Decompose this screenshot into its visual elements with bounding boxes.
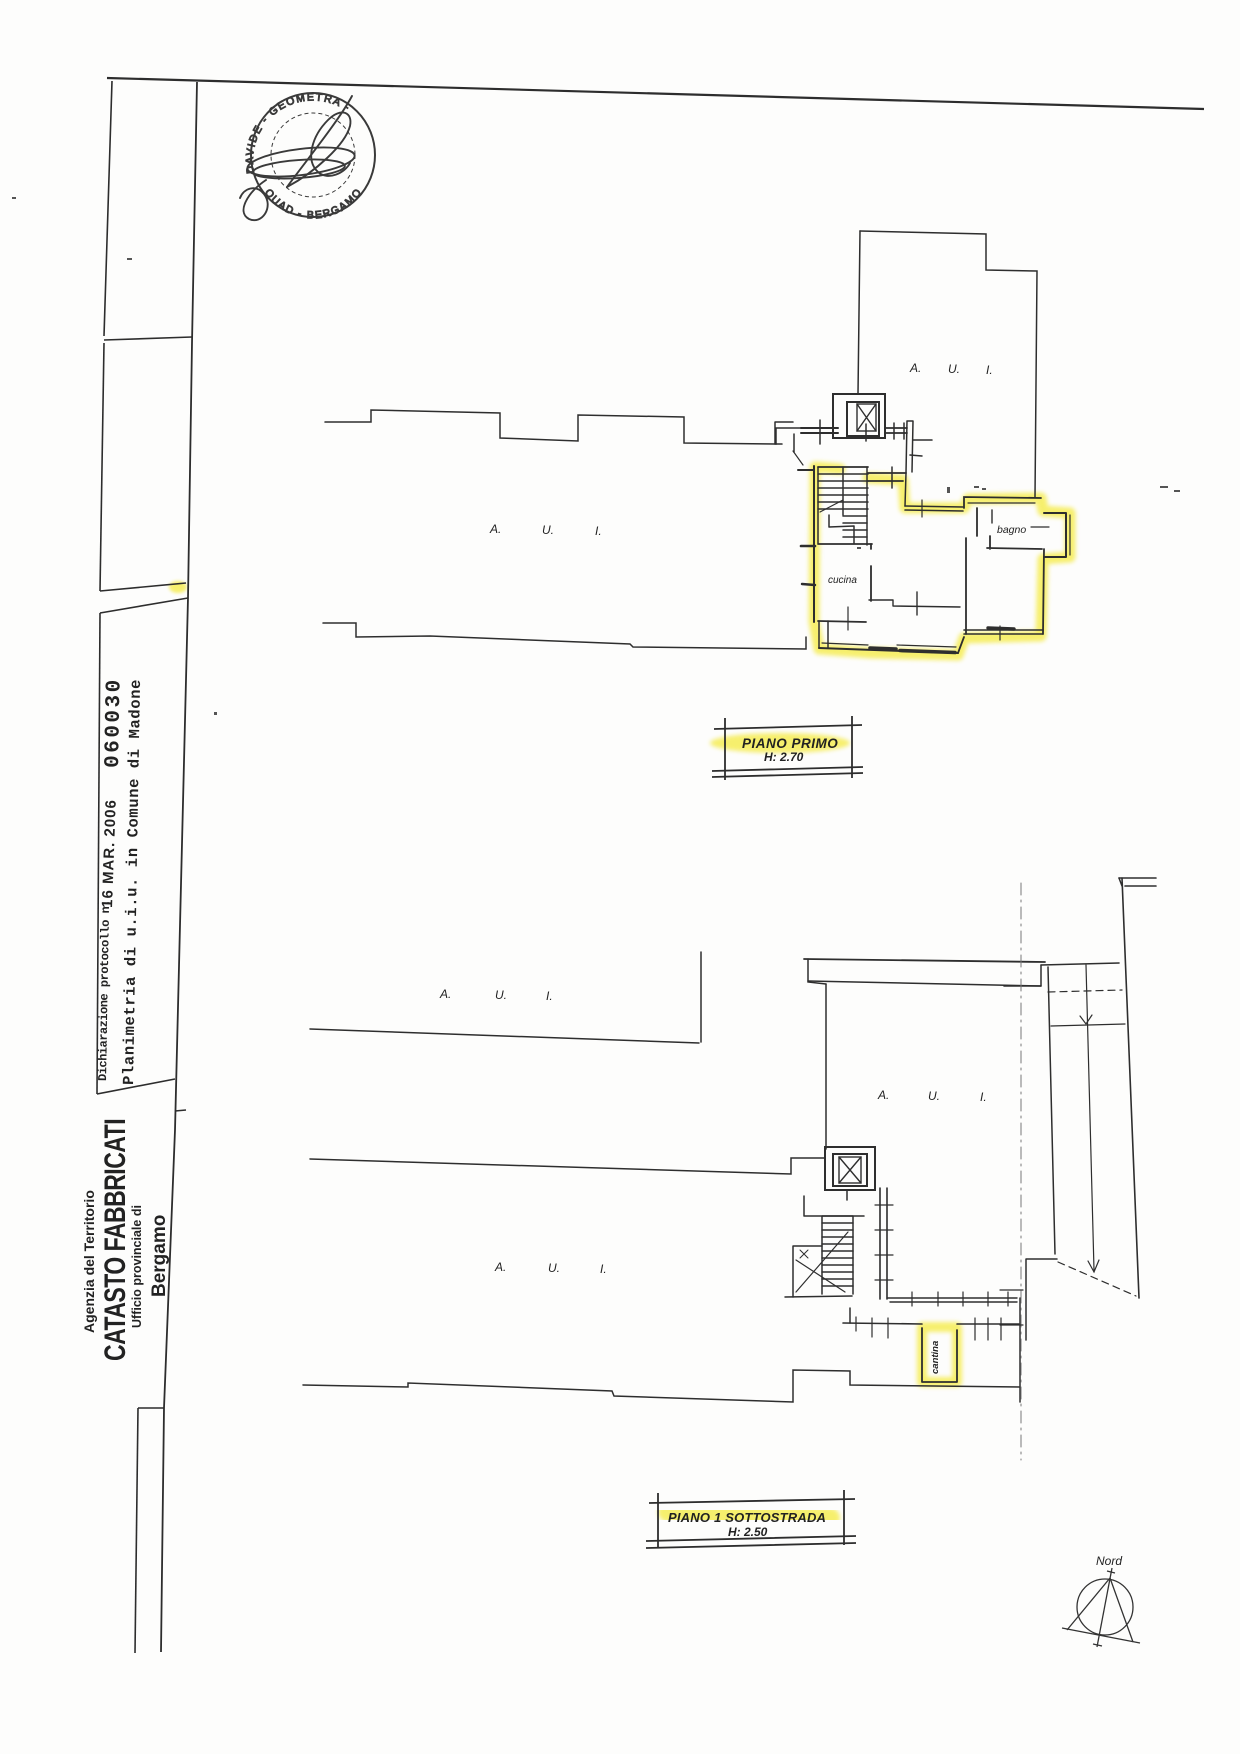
svg-text:Ufficio provinciale di: Ufficio provinciale di — [130, 1205, 144, 1328]
svg-text:A.: A. — [494, 1260, 506, 1274]
svg-text:A.: A. — [489, 522, 501, 536]
svg-text:U.: U. — [548, 1261, 560, 1275]
svg-text:I.: I. — [595, 524, 602, 538]
svg-text:16 MAR. 2006: 16 MAR. 2006 — [99, 799, 120, 908]
svg-text:Bergamo: Bergamo — [149, 1215, 170, 1297]
svg-text:Agenzia del Territorio: Agenzia del Territorio — [81, 1190, 97, 1333]
svg-text:Dichiarazione protocollo n.: Dichiarazione protocollo n. — [96, 900, 113, 1081]
svg-text:U.: U. — [948, 362, 960, 376]
svg-text:H: 2.70: H: 2.70 — [764, 750, 804, 764]
svg-text:PIANO 1 SOTTOSTRADA: PIANO 1 SOTTOSTRADA — [668, 1510, 826, 1525]
svg-text:QUAD - BERGAMO: QUAD - BERGAMO — [262, 186, 365, 222]
svg-text:I.: I. — [986, 363, 993, 377]
svg-text:bagno: bagno — [997, 524, 1026, 536]
svg-text:cantina: cantina — [930, 1341, 941, 1374]
svg-text:A.: A. — [909, 361, 921, 375]
svg-text:U.: U. — [928, 1089, 940, 1103]
svg-text:I.: I. — [980, 1090, 987, 1104]
svg-text:CATASTO FABBRICATI: CATASTO FABBRICATI — [98, 1119, 132, 1361]
svg-text:H: 2.50: H: 2.50 — [728, 1525, 768, 1539]
svg-text:060030: 060030 — [102, 677, 127, 768]
svg-text:A.: A. — [439, 987, 451, 1001]
svg-text:I.: I. — [546, 989, 553, 1003]
svg-text:I.: I. — [600, 1262, 607, 1276]
svg-text:U.: U. — [542, 523, 554, 537]
svg-text:U.: U. — [495, 988, 507, 1002]
svg-text:A.: A. — [877, 1088, 889, 1102]
svg-text:Nord: Nord — [1096, 1554, 1122, 1568]
svg-text:cucina: cucina — [828, 575, 857, 586]
svg-text:PIANO PRIMO: PIANO PRIMO — [742, 736, 838, 751]
